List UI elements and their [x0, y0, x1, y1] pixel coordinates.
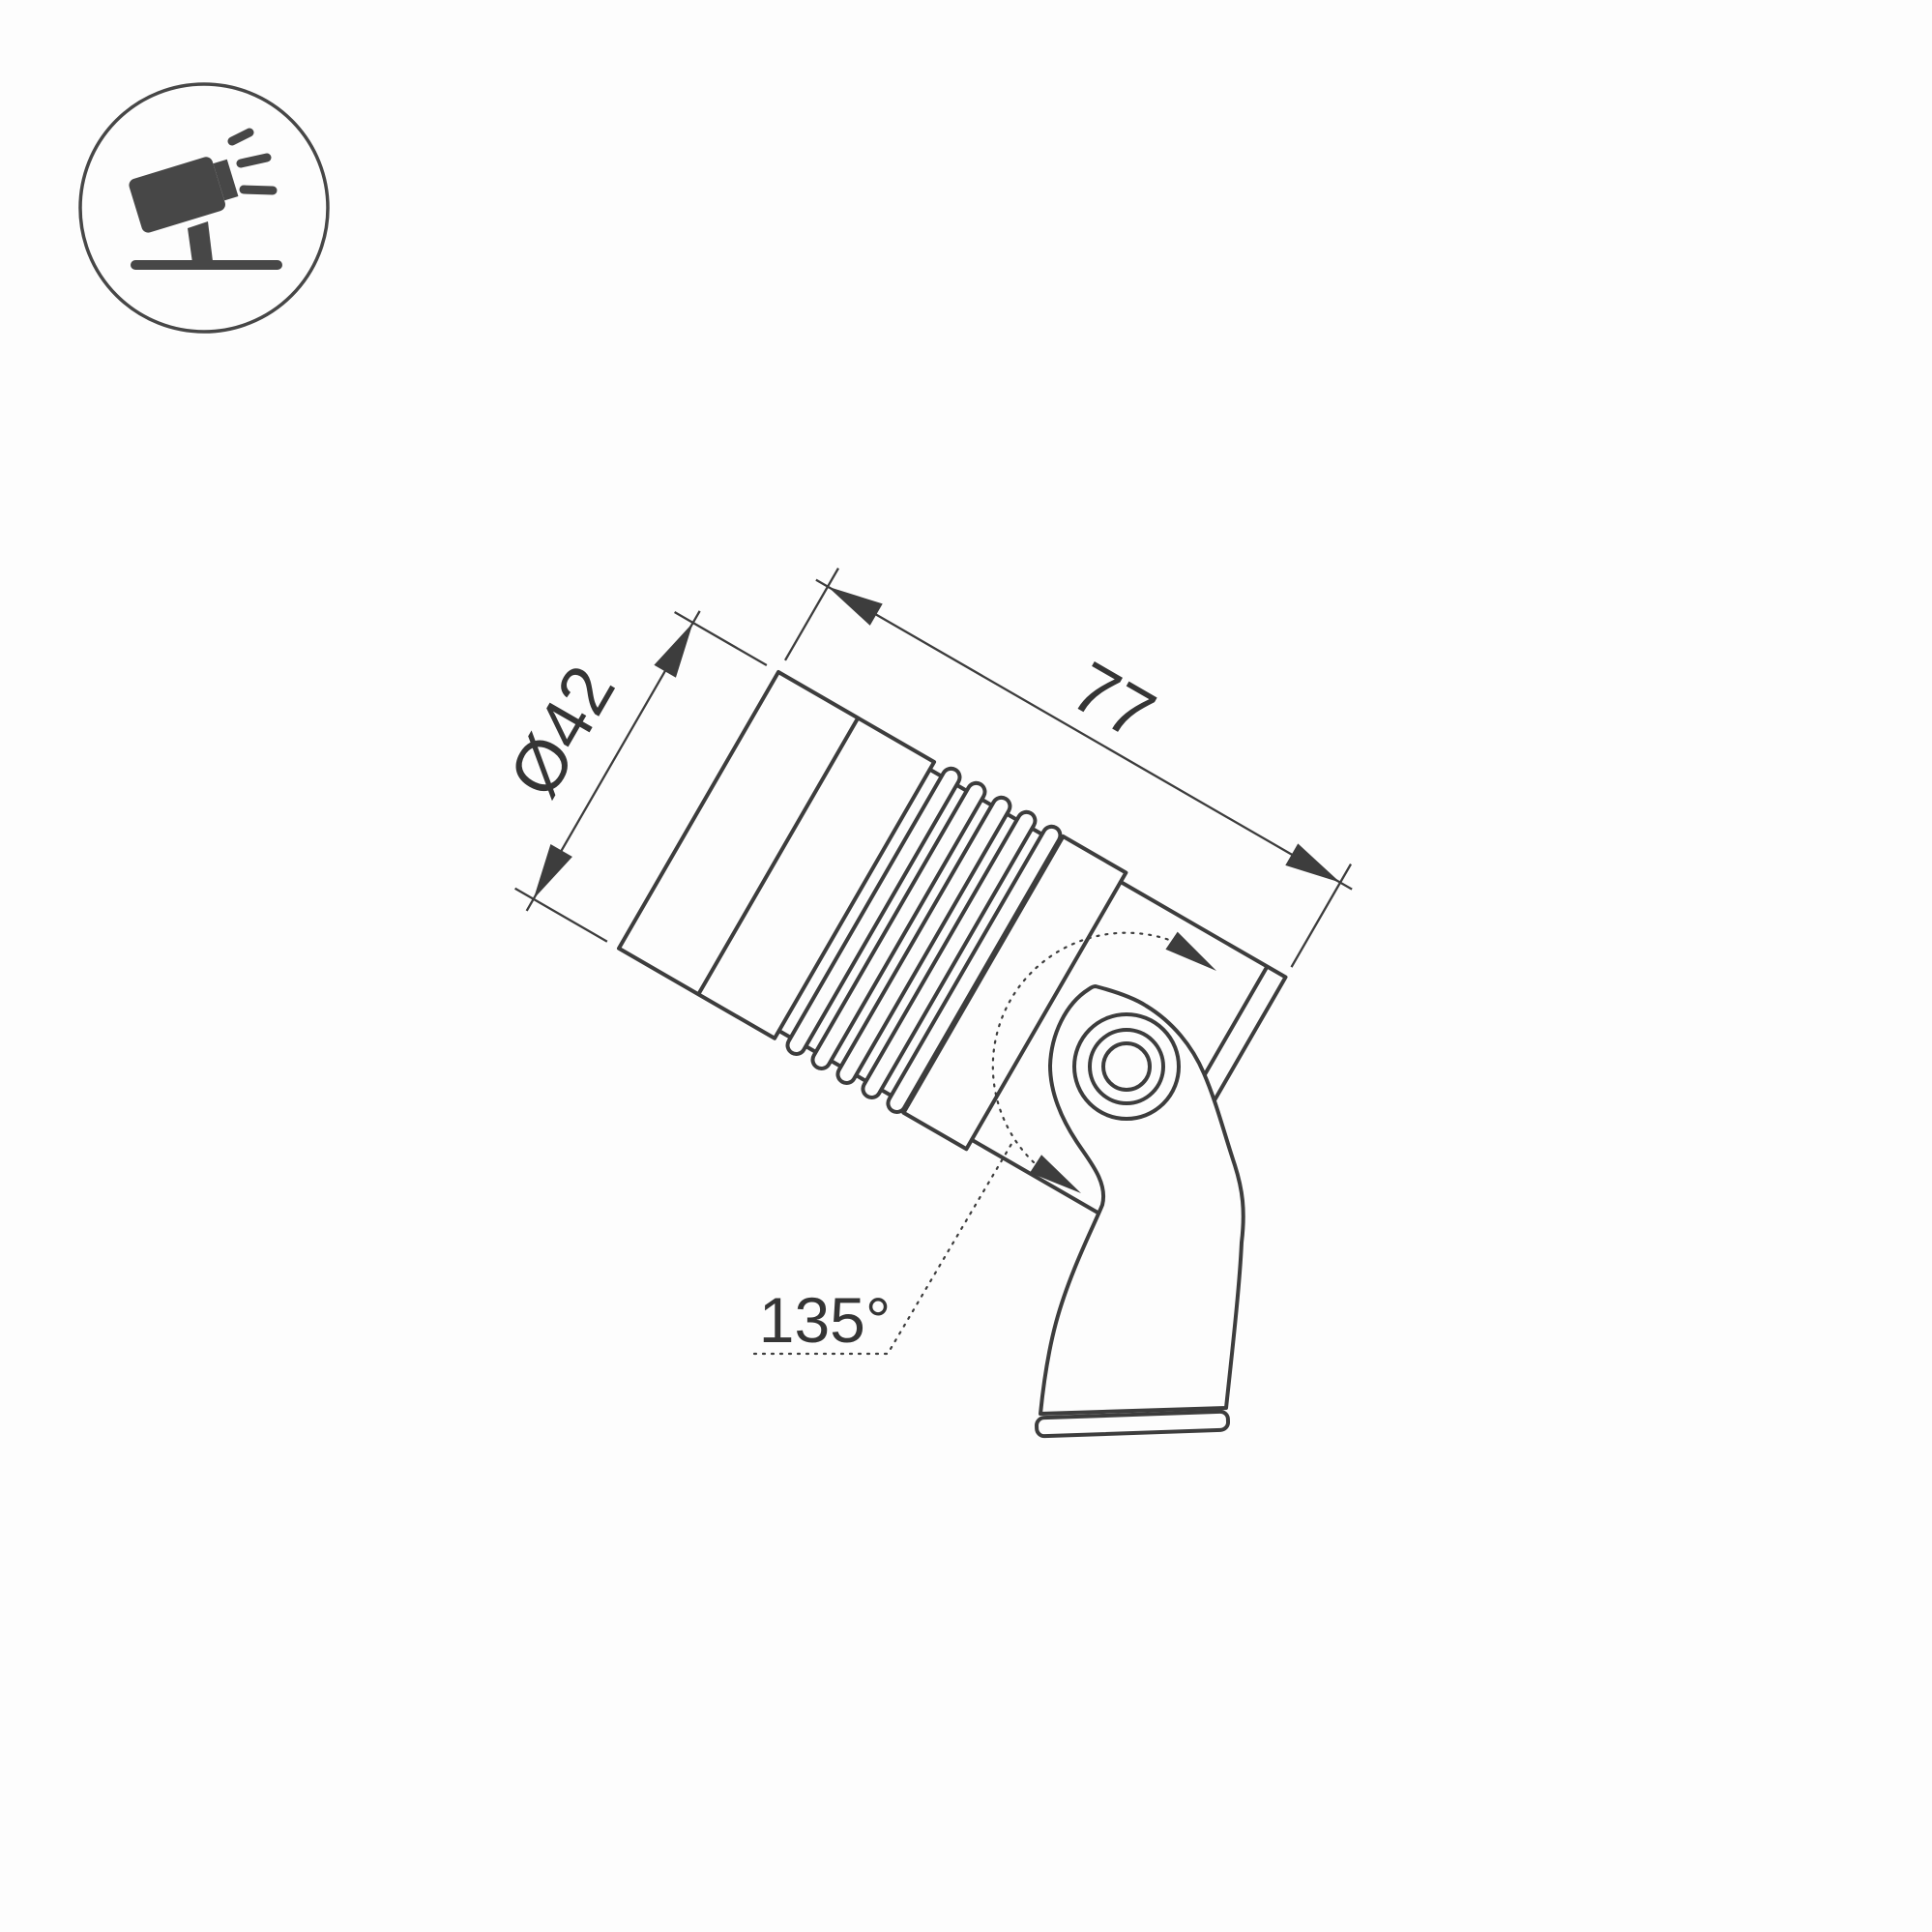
angle-label: 135° — [759, 1284, 892, 1356]
icon-ray-bottom — [244, 190, 273, 190]
page: Ø42 77 135° — [0, 0, 1932, 1932]
dimension-drawing-canvas: Ø42 77 135° — [0, 0, 1932, 1932]
bracket-base-plate — [1037, 1412, 1229, 1437]
icon-ray-middle — [241, 158, 267, 163]
